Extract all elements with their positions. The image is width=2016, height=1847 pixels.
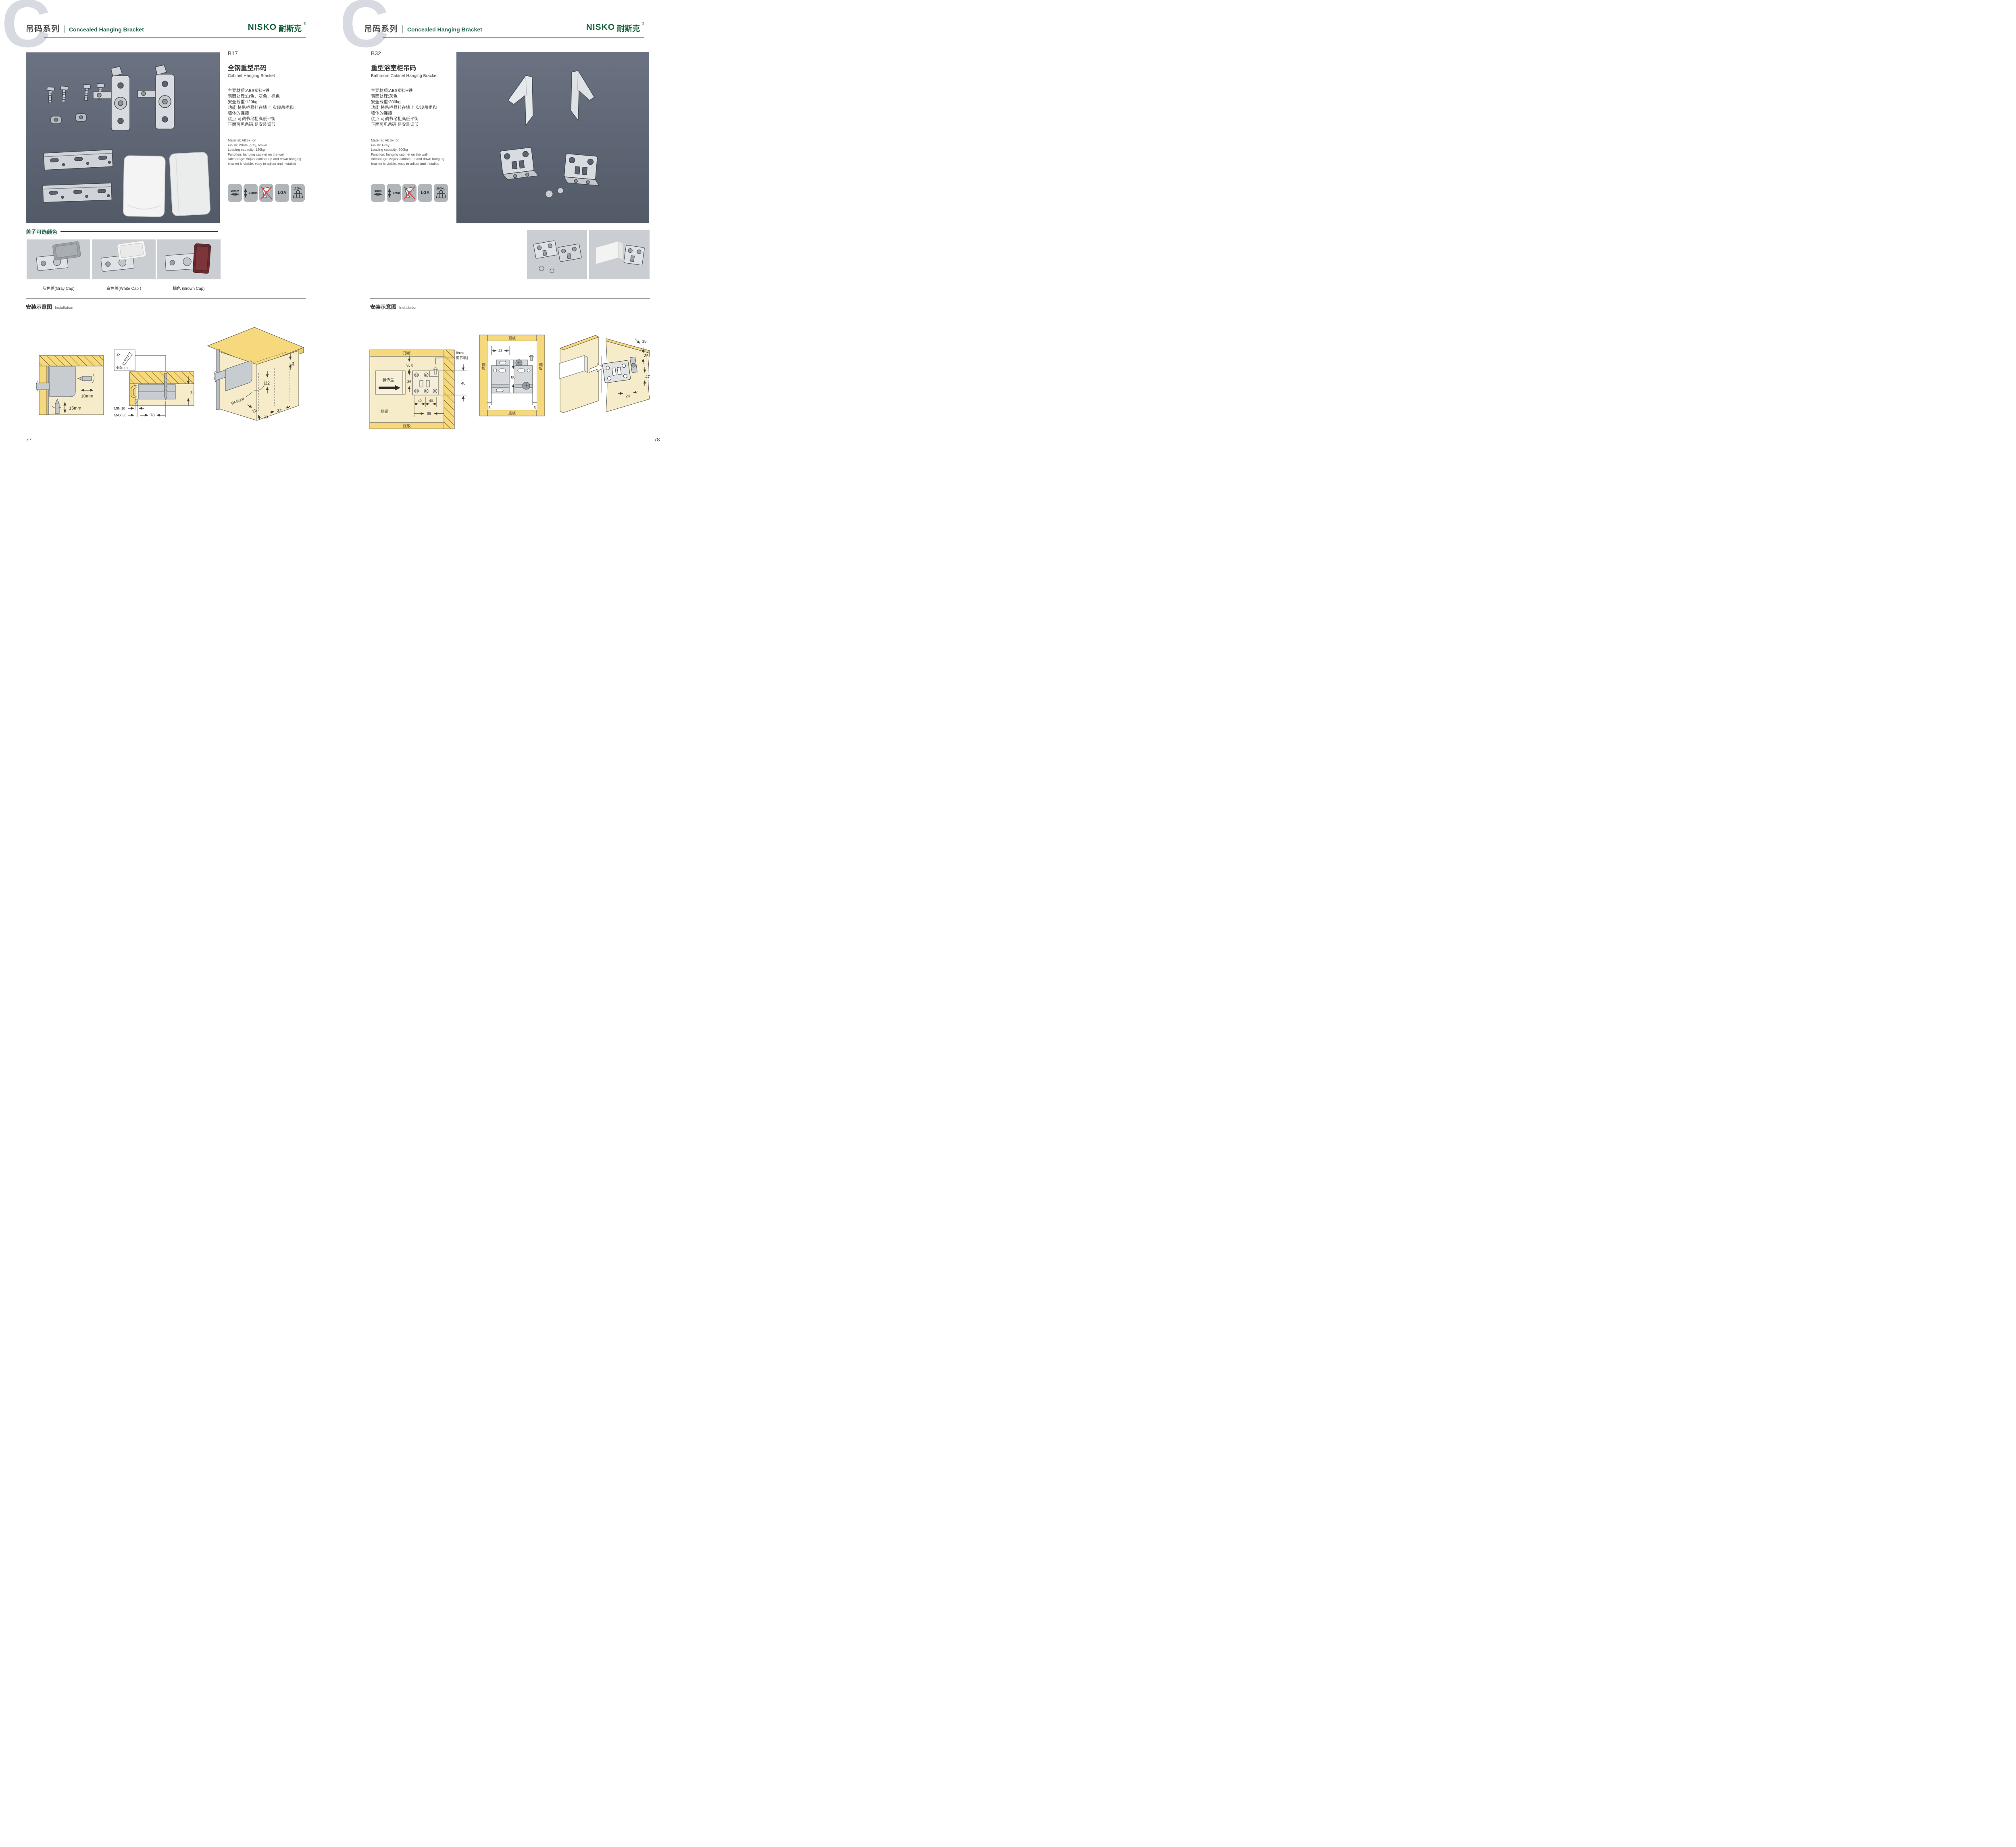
b32-detail-photo-1 xyxy=(527,230,587,279)
cap-gray-photo xyxy=(27,239,90,279)
cap-brown-label: 棕色 (Brown Cap) xyxy=(157,285,221,291)
product-name-en: Bathroom Cabinet Hanging Bracket xyxy=(371,73,462,78)
cap-white-label: 白色盖(White Cap ) xyxy=(92,285,156,291)
height-adjust-icon: 8mm xyxy=(387,184,401,202)
page-number: 77 xyxy=(26,437,31,443)
cap-gray-illustration xyxy=(27,239,90,279)
cap-brown-illustration xyxy=(157,239,221,279)
spec-line: Advantage: Adjust cabinet up and down ha… xyxy=(371,157,462,162)
width-adjust-icon: 4mm xyxy=(371,184,385,202)
cap-brown-photo xyxy=(157,239,221,279)
specs-en: Material: ABS+iron Finish: Grey Loading … xyxy=(371,138,462,166)
load-capacity-icon: 200Kg xyxy=(434,184,448,202)
svg-text:MAX.30: MAX.30 xyxy=(114,413,127,417)
installation-title-en: Installation xyxy=(399,306,417,310)
b17-feature-icons: 10mm 15mm LGA 120Kg xyxy=(228,184,305,202)
b32-install-diagram-3: 18 35 47 24 xyxy=(558,332,652,416)
spec-line: bracket is visible, easy to adjust and i… xyxy=(371,162,462,166)
svg-text:24: 24 xyxy=(625,394,630,399)
spec-line: Finish: White, gray, brown xyxy=(228,143,319,148)
registered-mark: ® xyxy=(304,22,306,25)
svg-text:78: 78 xyxy=(150,413,155,418)
installation-divider xyxy=(370,298,650,299)
specs-en: Material: ABS+iron Finish: White, gray, … xyxy=(228,138,319,166)
svg-text:5: 5 xyxy=(488,406,491,410)
product-name-en: Cabinet Hanging Bracket xyxy=(228,73,319,78)
v-arrow-icon xyxy=(387,187,392,200)
svg-text:装饰盖: 装饰盖 xyxy=(383,378,394,383)
svg-text:底板: 底板 xyxy=(508,411,516,415)
spec-line: 功能:将吊柜悬挂在墙上,实现吊柜和 xyxy=(228,105,319,110)
spec-line: bracket is visible, easy to adjust and i… xyxy=(228,162,319,166)
spec-line: 优点:可调节吊柜高低平衡 xyxy=(371,116,462,122)
no-drill-icon xyxy=(259,184,273,202)
brand-logo-cn: 耐斯克 xyxy=(279,23,302,33)
registered-mark: ® xyxy=(642,22,644,25)
svg-text:98: 98 xyxy=(427,412,431,416)
svg-text:侧板: 侧板 xyxy=(380,409,388,414)
load-label: 200Kg xyxy=(436,187,446,190)
series-title-en: Concealed Hanging Bracket xyxy=(69,26,144,33)
spec-line: 主要材质:ABS塑料+铁 xyxy=(228,88,319,94)
spec-line: 墙体的连接 xyxy=(228,110,319,116)
b32-product-photo xyxy=(456,52,649,223)
page-header: 吊码系列 | Concealed Hanging Bracket xyxy=(364,22,482,34)
specs-cn: 主要材质:ABS塑料+铁 表面处理:灰色 安全载重:200kg 功能:将吊柜悬挂… xyxy=(371,88,462,127)
header-separator: | xyxy=(63,25,65,33)
installation-divider xyxy=(26,298,306,299)
height-adjust-icon: 15mm xyxy=(244,184,258,202)
spec-line: 表面处理:灰色 xyxy=(371,94,462,99)
spec-line: Advantage: Adjust cabinet up and down ha… xyxy=(228,157,319,162)
b17-info: B17 全钢重型吊码 Cabinet Hanging Bracket 主要材质:… xyxy=(228,50,319,166)
installation-title-cn: 安装示意图 xyxy=(370,303,396,310)
brand-logo: NISKO 耐斯克 ® xyxy=(248,23,306,33)
b17-install-diagram-2: 2x Φ4mm 13 MIN.10 MAX.30 78 xyxy=(113,349,196,418)
installation-title: 安装示意图 Installation xyxy=(370,303,417,310)
svg-text:侧板: 侧板 xyxy=(539,362,543,370)
cap-gray-label: 灰色盖(Gray Cap) xyxy=(27,285,90,291)
svg-text:2x: 2x xyxy=(117,352,121,356)
installation-title-cn: 安装示意图 xyxy=(26,303,52,310)
svg-text:调节螺丝: 调节螺丝 xyxy=(456,356,468,360)
page-left: C 吊码系列 | Concealed Hanging Bracket NISKO… xyxy=(0,0,338,462)
svg-text:32: 32 xyxy=(277,409,282,413)
b17-product-photo xyxy=(26,52,220,223)
spec-line: 安全载重:200kg xyxy=(371,99,462,105)
series-title-cn: 吊码系列 xyxy=(364,22,398,34)
height-adjust-label: 15mm xyxy=(249,191,258,195)
spec-line: Loading capacity: 200kg xyxy=(371,148,462,152)
weight-icon xyxy=(292,190,304,199)
detail-bracket-illustration xyxy=(589,230,650,279)
page-header: 吊码系列 | Concealed Hanging Bracket xyxy=(26,22,144,34)
spec-line: 正面可见吊码,易安装调节 xyxy=(371,122,462,127)
product-code: B17 xyxy=(228,50,319,56)
svg-text:5: 5 xyxy=(533,406,536,410)
lga-cert-icon: LGA xyxy=(275,184,289,202)
svg-text:36.5: 36.5 xyxy=(406,364,413,368)
no-drill-icon xyxy=(402,184,417,202)
height-adjust-label: 8mm xyxy=(393,191,400,195)
b17-product-illustration xyxy=(26,52,220,223)
svg-text:32: 32 xyxy=(265,381,270,386)
spec-line: Loading capacity: 120kg xyxy=(228,148,319,152)
spec-line: 墙体的连接 xyxy=(371,110,462,116)
lga-label: LGA xyxy=(278,191,286,195)
white-cover-side xyxy=(169,152,210,216)
svg-text:Φ4mm: Φ4mm xyxy=(116,366,128,370)
header-rule xyxy=(44,37,306,38)
svg-text:13: 13 xyxy=(190,390,195,395)
width-adjust-label: 4mm xyxy=(375,189,382,193)
h-arrow-icon xyxy=(373,192,383,196)
detail-plates-illustration xyxy=(527,230,587,279)
svg-text:15mm: 15mm xyxy=(69,406,81,411)
header-rule xyxy=(383,37,644,38)
brand-logo-en: NISKO xyxy=(586,23,615,32)
lga-label: LGA xyxy=(421,191,429,195)
drill-crossed-icon xyxy=(260,185,273,200)
spec-line: Material: ABS+iron xyxy=(228,138,319,143)
v-arrow-icon xyxy=(244,187,248,200)
svg-text:40: 40 xyxy=(418,399,422,403)
svg-text:18: 18 xyxy=(642,339,647,344)
spec-line: 正面可见吊码,易安装调节 xyxy=(228,122,319,127)
brand-logo: NISKO 耐斯克 ® xyxy=(586,23,644,33)
spec-line: Material: ABS+iron xyxy=(371,138,462,143)
brand-logo-en: NISKO xyxy=(248,23,277,32)
product-code: B32 xyxy=(371,50,462,56)
caps-section-rule xyxy=(60,231,218,232)
spec-line: 优点:可调节吊柜高低平衡 xyxy=(228,116,319,122)
spec-line: Function: hanging cabinet on the wall xyxy=(371,152,462,157)
svg-text:顶板: 顶板 xyxy=(403,351,411,356)
svg-text:47: 47 xyxy=(645,375,650,379)
white-cover-front xyxy=(123,156,165,217)
svg-text:8mm: 8mm xyxy=(456,351,464,355)
specs-cn: 主要材质:ABS塑料+铁 表面处理:白色、灰色、棕色 安全载重:120kg 功能… xyxy=(228,88,319,127)
b32-install-diagram-1: 顶板 底板 装饰盖 8mm 调节螺丝 48 36.5 36 xyxy=(369,348,468,434)
b17-install-diagram-1: 10mm 15mm xyxy=(36,353,105,417)
lga-cert-icon: LGA xyxy=(418,184,432,202)
svg-text:20: 20 xyxy=(263,415,268,420)
spec-line: Function: hanging cabinet on the wall xyxy=(228,152,319,157)
spec-line: 安全载重:120kg xyxy=(228,99,319,105)
spec-line: 主要材质:ABS塑料+铁 xyxy=(371,88,462,94)
installation-title: 安装示意图 Installation xyxy=(26,303,73,310)
product-name-cn: 重型浴室柜吊码 xyxy=(371,62,462,72)
b32-product-illustration xyxy=(456,52,649,223)
header-separator: | xyxy=(402,25,404,33)
cap-white-illustration xyxy=(92,239,156,279)
svg-text:顶板: 顶板 xyxy=(508,336,516,340)
mounting-rail-2 xyxy=(43,183,112,202)
caps-section-title: 盖子可选颜色 xyxy=(26,228,57,235)
product-name-cn: 全钢重型吊码 xyxy=(228,62,319,72)
svg-text:48: 48 xyxy=(461,381,466,386)
svg-text:35: 35 xyxy=(644,354,649,358)
spec-line: 表面处理:白色、灰色、棕色 xyxy=(228,94,319,99)
svg-text:80: 80 xyxy=(511,375,516,380)
svg-text:40: 40 xyxy=(429,399,433,403)
spec-line: 功能:将吊柜悬挂在墙上,实现吊柜和 xyxy=(371,105,462,110)
mounting-rail-1 xyxy=(44,150,113,170)
b32-detail-photo-2 xyxy=(589,230,650,279)
b17-install-diagram-3: 34 32 RMAX4 18 20 32 xyxy=(207,326,304,424)
installation-title-en: Installation xyxy=(55,306,73,310)
b32-install-diagram-2: 顶板 底板 侧板 侧板 48 80 xyxy=(479,334,546,417)
width-adjust-label: 10mm xyxy=(231,189,240,193)
svg-text:MIN.10: MIN.10 xyxy=(114,406,125,410)
page-number: 78 xyxy=(654,437,660,443)
svg-text:侧板: 侧板 xyxy=(481,362,485,370)
series-title-cn: 吊码系列 xyxy=(26,22,60,34)
weight-icon xyxy=(435,190,447,199)
cap-white-photo xyxy=(92,239,156,279)
load-capacity-icon: 120Kg xyxy=(291,184,305,202)
width-adjust-icon: 10mm xyxy=(228,184,242,202)
h-arrow-icon xyxy=(229,192,240,196)
svg-text:36: 36 xyxy=(407,380,412,384)
brand-logo-cn: 耐斯克 xyxy=(617,23,640,33)
page-right: C 吊码系列 | Concealed Hanging Bracket NISKO… xyxy=(338,0,676,462)
svg-text:48: 48 xyxy=(498,349,502,353)
drill-crossed-icon xyxy=(403,185,416,200)
b32-info: B32 重型浴室柜吊码 Bathroom Cabinet Hanging Bra… xyxy=(371,50,462,166)
angle-bracket-right xyxy=(564,154,602,185)
svg-text:10mm: 10mm xyxy=(81,394,94,399)
load-label: 120Kg xyxy=(293,187,302,190)
svg-text:底板: 底板 xyxy=(403,424,411,428)
b32-feature-icons: 4mm 8mm LGA 200Kg xyxy=(371,184,448,202)
series-title-en: Concealed Hanging Bracket xyxy=(407,26,482,33)
spec-line: Finish: Grey xyxy=(371,143,462,148)
